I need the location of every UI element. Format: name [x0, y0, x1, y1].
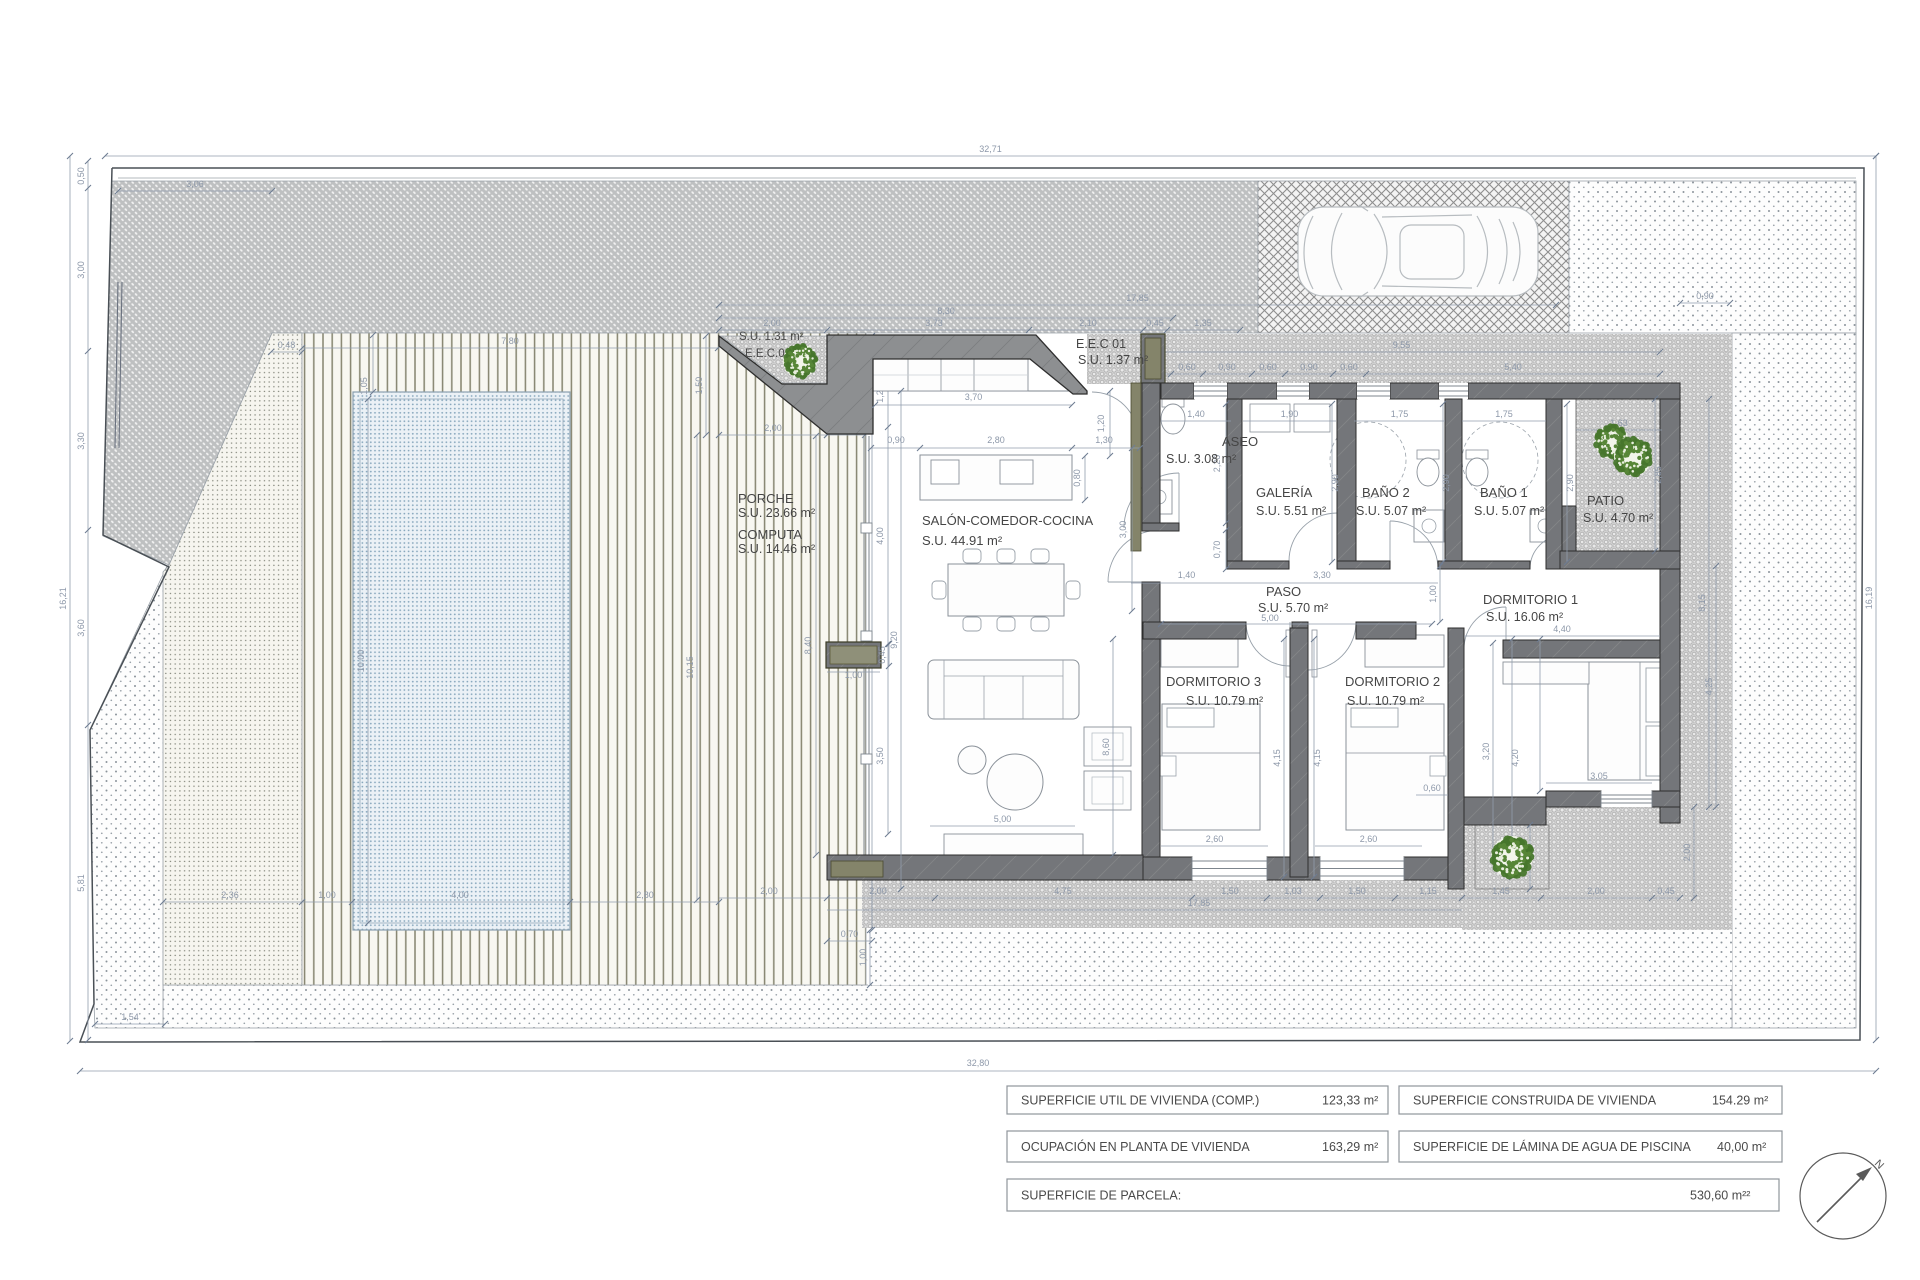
- svg-text:17,85: 17,85: [1188, 898, 1211, 908]
- svg-text:SUPERFICIE UTIL DE VIVIENDA (: SUPERFICIE UTIL DE VIVIENDA (COMP.): [1021, 1094, 1259, 1108]
- svg-text:17,85: 17,85: [1126, 293, 1149, 303]
- svg-text:16,21: 16,21: [58, 587, 68, 610]
- svg-text:0,45: 0,45: [1657, 886, 1675, 896]
- svg-text:9,20: 9,20: [889, 631, 899, 649]
- svg-text:0,70: 0,70: [841, 929, 859, 939]
- svg-text:0,60: 0,60: [1259, 362, 1277, 372]
- svg-text:2,00: 2,00: [1682, 844, 1692, 862]
- svg-text:1,90: 1,90: [1281, 409, 1299, 419]
- svg-text:40,00 m²: 40,00 m²: [1717, 1140, 1766, 1154]
- svg-text:S.U. 10.79 m²: S.U. 10.79 m²: [1186, 694, 1263, 708]
- svg-text:8,40: 8,40: [803, 637, 813, 655]
- svg-text:BAÑO 2: BAÑO 2: [1362, 485, 1410, 500]
- svg-text:7,80: 7,80: [501, 336, 519, 346]
- svg-text:2,10: 2,10: [1079, 318, 1097, 328]
- svg-text:0,45: 0,45: [877, 646, 887, 664]
- svg-text:4,00: 4,00: [875, 527, 885, 545]
- svg-text:S.U. 16.06 m²: S.U. 16.06 m²: [1486, 610, 1563, 624]
- svg-text:2,36: 2,36: [221, 890, 239, 900]
- svg-text:10,15: 10,15: [685, 656, 695, 679]
- svg-text:1,75: 1,75: [1391, 409, 1409, 419]
- svg-text:4,20: 4,20: [1510, 749, 1520, 767]
- svg-text:S.U. 4.70 m²: S.U. 4.70 m²: [1583, 511, 1653, 525]
- svg-text:S.U. 5.07 m²: S.U. 5.07 m²: [1356, 504, 1426, 518]
- svg-text:0,50: 0,50: [76, 167, 86, 185]
- svg-text:0,80: 0,80: [1072, 469, 1082, 487]
- svg-text:0,60: 0,60: [1340, 362, 1358, 372]
- svg-text:1,45: 1,45: [1492, 886, 1510, 896]
- svg-text:OCUPACIÓN EN PLANTA DE VIVIEND: OCUPACIÓN EN PLANTA DE VIVIENDA: [1021, 1139, 1250, 1154]
- svg-text:PORCHE: PORCHE: [738, 491, 794, 506]
- svg-text:5,81: 5,81: [76, 874, 86, 892]
- svg-text:S.U. 14.46 m²: S.U. 14.46 m²: [738, 542, 815, 556]
- svg-text:DORMITORIO 3: DORMITORIO 3: [1166, 674, 1261, 689]
- svg-text:1,00: 1,00: [845, 670, 863, 680]
- svg-text:PASO: PASO: [1266, 584, 1301, 599]
- svg-text:154.29 m²: 154.29 m²: [1712, 1094, 1768, 1108]
- svg-text:S.U. 5.51 m²: S.U. 5.51 m²: [1256, 504, 1326, 518]
- svg-text:0,90: 0,90: [1300, 362, 1318, 372]
- svg-text:1,05: 1,05: [359, 377, 369, 395]
- svg-text:S.U. 44.91 m²: S.U. 44.91 m²: [922, 533, 1003, 548]
- svg-text:1,00: 1,00: [318, 890, 336, 900]
- svg-text:2,00: 2,00: [1587, 886, 1605, 896]
- svg-text:1,50: 1,50: [694, 377, 704, 395]
- svg-text:1,00: 1,00: [858, 949, 868, 967]
- svg-text:2,80: 2,80: [636, 890, 654, 900]
- svg-text:1,40: 1,40: [1178, 570, 1196, 580]
- svg-text:0,60: 0,60: [1423, 783, 1441, 793]
- svg-text:S.U. 1.37 m²: S.U. 1.37 m²: [1078, 353, 1148, 367]
- svg-text:1,20: 1,20: [1096, 415, 1106, 433]
- svg-text:3,30: 3,30: [76, 432, 86, 450]
- svg-text:8,30: 8,30: [937, 306, 955, 316]
- svg-text:BAÑO 1: BAÑO 1: [1480, 485, 1528, 500]
- svg-text:S.U. 3.08 m²: S.U. 3.08 m²: [1166, 452, 1236, 466]
- svg-text:8,60: 8,60: [1101, 738, 1111, 756]
- svg-text:0,90: 0,90: [1696, 291, 1714, 301]
- svg-text:2,00: 2,00: [763, 318, 781, 328]
- svg-text:SUPERFICIE DE LÁMINA DE AGUA D: SUPERFICIE DE LÁMINA DE AGUA DE PISCINA: [1413, 1139, 1692, 1154]
- svg-text:530,60 m²²: 530,60 m²²: [1690, 1189, 1750, 1203]
- svg-text:4,15: 4,15: [1272, 749, 1282, 767]
- svg-text:1,15: 1,15: [1419, 886, 1437, 896]
- svg-text:3,30: 3,30: [1313, 570, 1331, 580]
- svg-text:2,00: 2,00: [869, 886, 887, 896]
- svg-text:4,00: 4,00: [451, 890, 469, 900]
- svg-text:0,60: 0,60: [1178, 362, 1196, 372]
- svg-text:3,00: 3,00: [76, 261, 86, 279]
- svg-text:ASEO: ASEO: [1222, 434, 1258, 449]
- svg-text:DORMITORIO 1: DORMITORIO 1: [1483, 592, 1578, 607]
- svg-text:3,60: 3,60: [76, 619, 86, 637]
- svg-text:1,40: 1,40: [1187, 409, 1205, 419]
- svg-text:3,70: 3,70: [965, 392, 983, 402]
- svg-text:COMPUTA: COMPUTA: [738, 527, 802, 542]
- svg-text:3,20: 3,20: [1481, 743, 1491, 761]
- svg-text:SALÓN-COMEDOR-COCINA: SALÓN-COMEDOR-COCINA: [922, 513, 1094, 528]
- svg-text:PATIO: PATIO: [1587, 493, 1624, 508]
- svg-text:5,40: 5,40: [1504, 362, 1522, 372]
- svg-text:10,00: 10,00: [356, 650, 366, 673]
- svg-text:DORMITORIO 2: DORMITORIO 2: [1345, 674, 1440, 689]
- svg-text:0,90: 0,90: [1218, 362, 1236, 372]
- svg-text:2,90: 2,90: [1441, 474, 1451, 492]
- svg-text:0,90: 0,90: [887, 435, 905, 445]
- svg-text:123,33 m²: 123,33 m²: [1322, 1094, 1378, 1108]
- svg-text:2,00: 2,00: [760, 886, 778, 896]
- svg-text:4,75: 4,75: [1054, 886, 1072, 896]
- svg-text:32,80: 32,80: [967, 1058, 990, 1068]
- svg-text:0,45: 0,45: [1146, 318, 1164, 328]
- svg-text:0,70: 0,70: [1212, 541, 1222, 559]
- svg-text:0,48: 0,48: [278, 340, 296, 350]
- svg-text:2,60: 2,60: [1206, 834, 1224, 844]
- svg-text:SUPERFICIE DE PARCELA:: SUPERFICIE DE PARCELA:: [1021, 1189, 1181, 1203]
- svg-text:1,75: 1,75: [1495, 409, 1513, 419]
- svg-text:16,19: 16,19: [1864, 587, 1874, 610]
- svg-text:3,50: 3,50: [875, 747, 885, 765]
- svg-text:5,00: 5,00: [994, 814, 1012, 824]
- svg-text:1,35: 1,35: [1194, 318, 1212, 328]
- svg-text:3,00: 3,00: [1118, 521, 1128, 539]
- svg-text:4,40: 4,40: [1553, 624, 1571, 634]
- svg-text:2,60: 2,60: [1360, 834, 1378, 844]
- svg-text:S.U. 10.79 m²: S.U. 10.79 m²: [1347, 694, 1424, 708]
- svg-text:1,54: 1,54: [121, 1012, 139, 1022]
- svg-text:8,15: 8,15: [1697, 594, 1707, 612]
- svg-text:4,25: 4,25: [1704, 678, 1714, 696]
- svg-text:1,50: 1,50: [1348, 886, 1366, 896]
- svg-text:1,00: 1,00: [1428, 585, 1438, 603]
- svg-text:S.U. 5.07 m²: S.U. 5.07 m²: [1474, 504, 1544, 518]
- svg-text:9,55: 9,55: [1393, 340, 1411, 350]
- svg-text:E.E.C 01: E.E.C 01: [1076, 337, 1126, 351]
- svg-text:S.U. 23.66 m²: S.U. 23.66 m²: [738, 506, 815, 520]
- svg-text:GALERÍA: GALERÍA: [1256, 485, 1313, 500]
- svg-text:2,00: 2,00: [764, 423, 782, 433]
- svg-text:S.U. 5.70 m²: S.U. 5.70 m²: [1258, 601, 1328, 615]
- svg-text:32,71: 32,71: [979, 144, 1002, 154]
- svg-text:3,73: 3,73: [925, 318, 943, 328]
- svg-text:1,50: 1,50: [1221, 886, 1239, 896]
- svg-text:2,80: 2,80: [987, 435, 1005, 445]
- svg-text:S.U. 1.31 m²: S.U. 1.31 m²: [739, 331, 804, 343]
- svg-text:2,90: 2,90: [1565, 474, 1575, 492]
- svg-text:2,85: 2,85: [1653, 466, 1663, 484]
- svg-text:163,29 m²: 163,29 m²: [1322, 1140, 1378, 1154]
- svg-text:1,03: 1,03: [1284, 886, 1302, 896]
- svg-text:SUPERFICIE CONSTRUIDA DE VIVIE: SUPERFICIE CONSTRUIDA DE VIVIENDA: [1413, 1094, 1657, 1108]
- svg-text:4,15: 4,15: [1312, 749, 1322, 767]
- svg-text:3,06: 3,06: [186, 179, 204, 189]
- svg-text:2,90: 2,90: [1330, 474, 1340, 492]
- svg-text:E.E.C.0: E.E.C.0: [745, 348, 785, 360]
- svg-text:3,05: 3,05: [1590, 771, 1608, 781]
